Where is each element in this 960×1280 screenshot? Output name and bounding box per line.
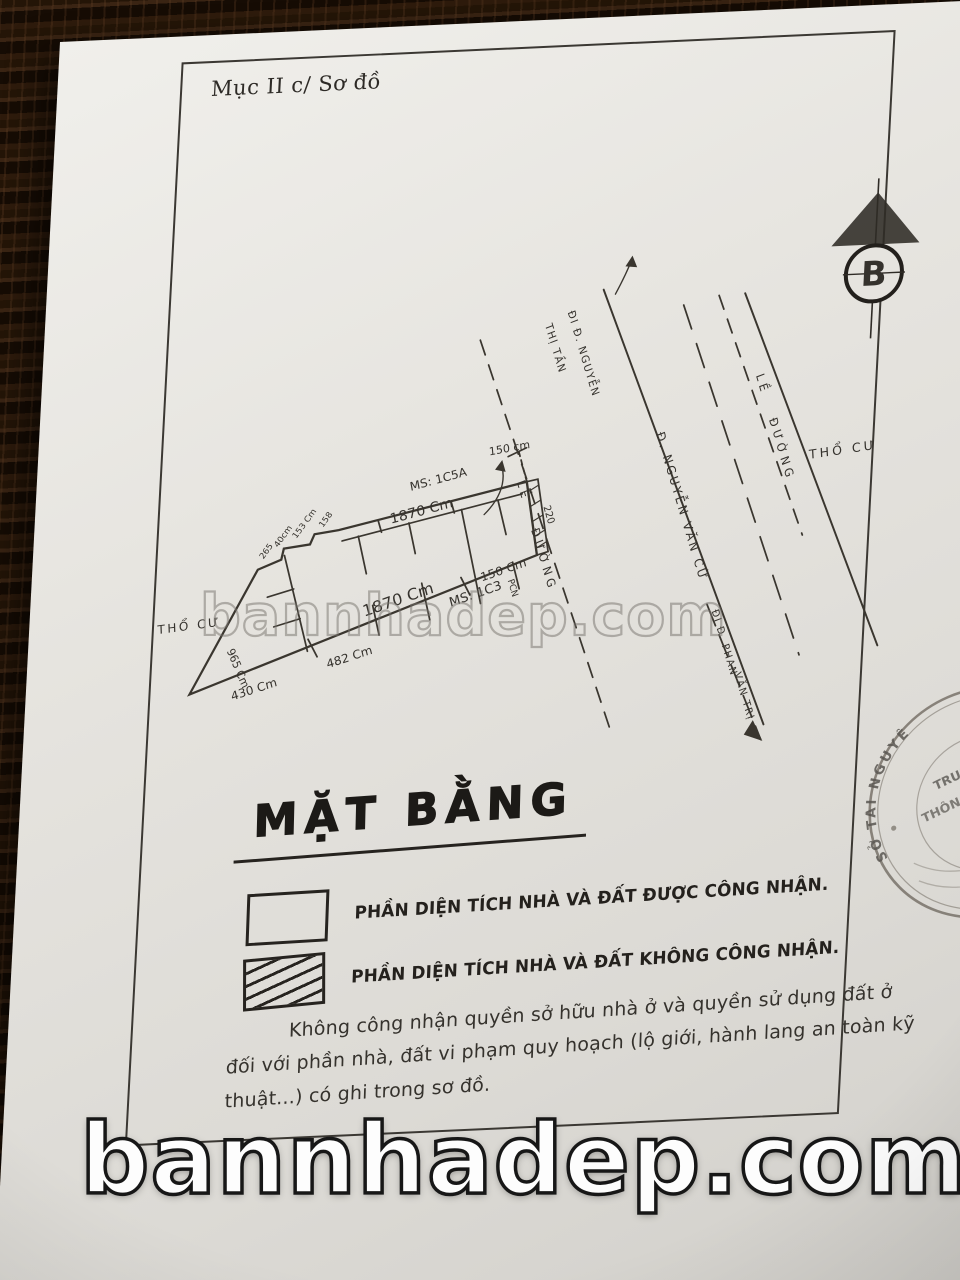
watermark-bottom: bannhadep.com (80, 1103, 960, 1216)
thi-tan-arrowhead (627, 257, 636, 266)
phan-van-tri-arrowhead (745, 721, 762, 740)
watermark-center: bannhadep.com (200, 583, 727, 649)
setback-arrowhead (496, 462, 504, 471)
road-label-le-duong-inner: LỀ ĐƯỜNG (514, 477, 562, 593)
legend-label-not-recognized: PHẦN DIỆN TÍCH NHÀ VÀ ĐẤT KHÔNG CÔNG NHẬ… (351, 938, 840, 988)
road-line-outer-solid (726, 286, 896, 652)
svg-text:SỞ TÀI NGUYÊ: SỞ TÀI NGUYÊ (859, 723, 914, 865)
stamp-arc-text: SỞ TÀI NGUYÊ (859, 723, 914, 865)
label-ms-1c5a: MS: 1C5A (409, 465, 469, 494)
road-label-to-nguyen-thi-tan-1: ĐI Đ. NGUYỄN (565, 308, 605, 399)
road-label-to-nguyen-thi-tan-2: THỊ TẦN (542, 320, 570, 375)
dim-158: 158 (317, 510, 335, 529)
legend-swatch-not-recognized (243, 952, 325, 1012)
dim-150-right: 150 Cm (479, 555, 528, 584)
road-label-le-duong-outer: LỀ ĐƯỜNG (753, 371, 800, 483)
road-label-nguyen-van-cu: Đ. NGUYỄN VĂN CỪ (653, 429, 712, 583)
official-stamp: SỞ TÀI NGUYÊ TRUNG T THÔNG (858, 657, 960, 948)
legend-label-recognized: PHẦN DIỆN TÍCH NHÀ VÀ ĐẤT ĐƯỢC CÔNG NHẬN… (354, 875, 829, 924)
photo-of-document: Mục II c/ Sơ đồ B (0, 0, 960, 1280)
stamp-separator-dot (891, 825, 896, 830)
site-plan: 1870 Cm MS: 1C5A 1870 Cm MS: 1C3 150 Cm … (144, 200, 934, 815)
dim-220: 220 (541, 504, 557, 526)
stamp-line1: TRUNG T (931, 752, 960, 793)
area-label-tho-cu-right: THỔ CƯ (808, 436, 878, 462)
section-header: Mục II c/ Sơ đồ (211, 69, 382, 101)
dim-1870-top: 1870 Cm (389, 495, 454, 527)
legend-swatch-recognized (246, 889, 330, 946)
road-line-le-duong-outer-dashed (706, 291, 815, 539)
stamp-line2: THÔNG (920, 790, 960, 826)
